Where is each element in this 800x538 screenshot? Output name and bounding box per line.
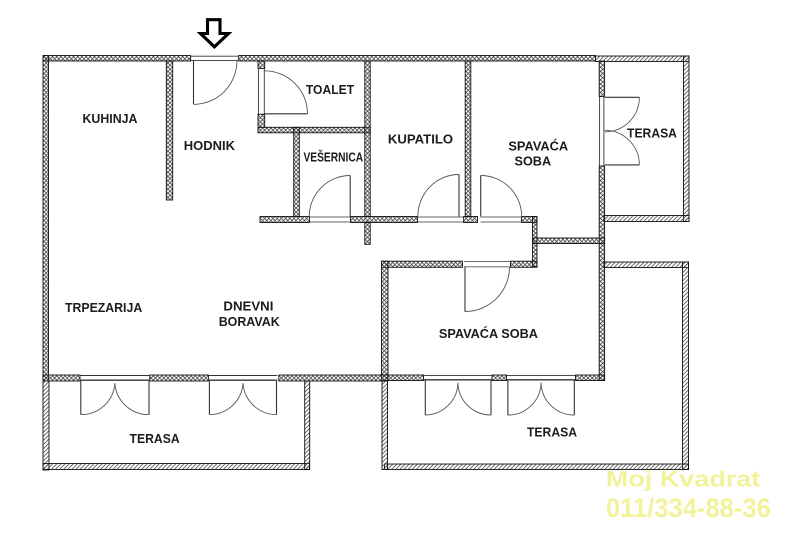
svg-text:SOBA: SOBA — [515, 153, 552, 168]
svg-text:TRPEZARIJA: TRPEZARIJA — [65, 300, 143, 315]
svg-text:KUHINJA: KUHINJA — [83, 111, 139, 126]
svg-text:TERASA: TERASA — [527, 425, 578, 440]
svg-text:SPAVAĆA: SPAVAĆA — [508, 139, 568, 154]
svg-text:011/334-88-36: 011/334-88-36 — [606, 493, 771, 523]
svg-text:HODNIK: HODNIK — [184, 138, 236, 153]
svg-text:TOALET: TOALET — [306, 82, 354, 97]
svg-text:VEŠERNICA: VEŠERNICA — [304, 150, 364, 165]
svg-text:DNEVNI: DNEVNI — [223, 299, 273, 314]
svg-text:TERASA: TERASA — [627, 126, 677, 141]
svg-text:BORAVAK: BORAVAK — [219, 314, 281, 329]
svg-text:TERASA: TERASA — [130, 431, 181, 446]
svg-text:KUPATILO: KUPATILO — [388, 132, 453, 147]
svg-text:Moj Kvadrat: Moj Kvadrat — [606, 467, 761, 492]
svg-text:SPAVAĆA SOBA: SPAVAĆA SOBA — [439, 326, 539, 341]
